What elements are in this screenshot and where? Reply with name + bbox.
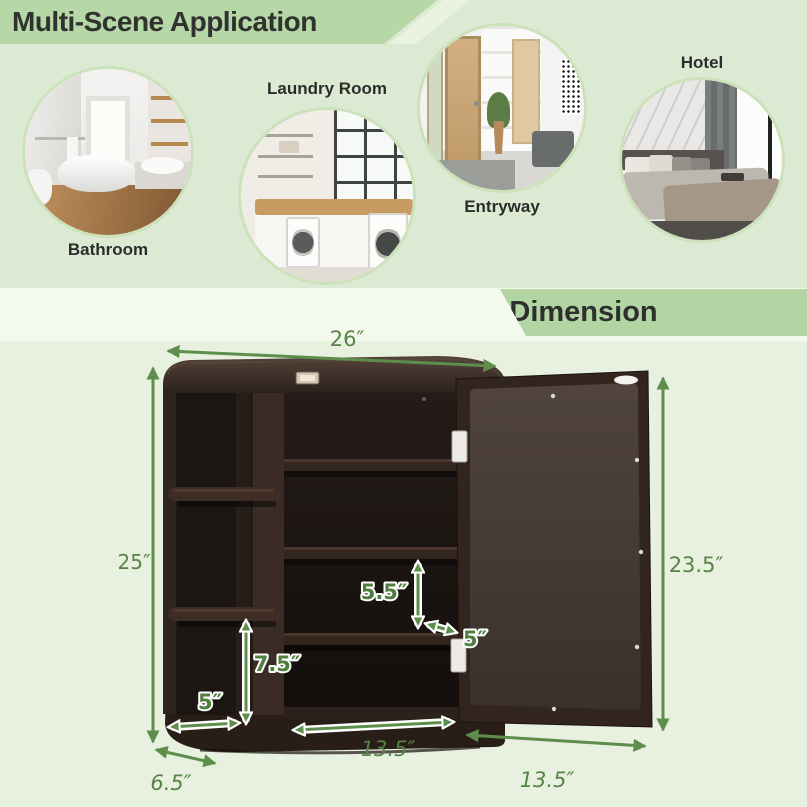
entryway-sidelight-glass [427,36,443,174]
scene-photo-laundry-room [238,107,416,285]
scene-label-bathroom: Bathroom [22,240,194,260]
scene-photo-entryway [417,23,587,193]
entryway-inner-door [512,39,540,144]
hotel-floor [622,221,782,240]
laundry-floor [241,267,413,282]
scene-photo-bathroom [22,66,194,238]
product-infographic: Multi-Scene Application Bathroom Laundry… [0,0,807,807]
scene-label-hotel: Hotel [619,53,785,73]
laundry-shelf [258,134,313,137]
bathroom-toilet [25,169,52,206]
laundry-shelf [258,155,313,158]
scene-label-laundry-room: Laundry Room [229,79,425,99]
hotel-tray [721,173,743,181]
scene-label-entryway: Entryway [417,197,587,217]
laundry-shelf [258,175,313,178]
bathroom-wood-shelf [151,119,188,123]
hotel-window [737,80,782,179]
bathroom-wood-shelf [151,142,188,146]
laundry-dryer [286,217,320,269]
dimension-section-background [0,341,807,807]
laundry-basket [279,141,300,153]
bathroom-bathtub [58,155,134,192]
laundry-washing-machine [368,213,408,271]
laundry-window [334,110,413,210]
hotel-window-frame [768,80,772,179]
scene-photo-hotel [619,77,785,243]
bathroom-sink [141,157,184,174]
entryway-bench [532,131,575,167]
entryway-rug [420,160,515,190]
bathroom-wood-shelf [151,96,188,100]
entryway-wall-art [561,59,581,115]
